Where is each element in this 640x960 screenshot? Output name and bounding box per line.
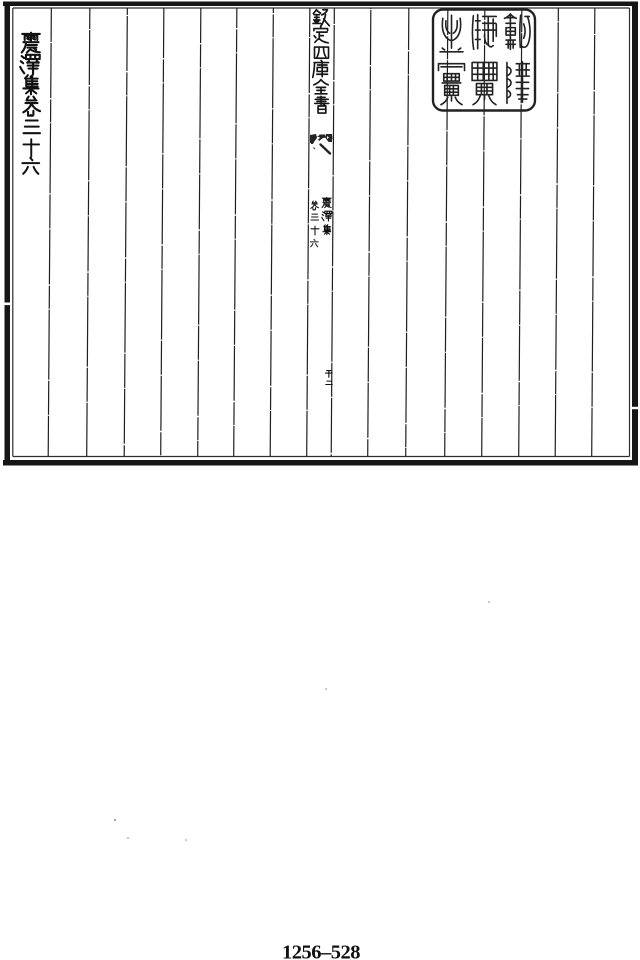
svg-text:1256–528: 1256–528 bbox=[282, 942, 360, 960]
